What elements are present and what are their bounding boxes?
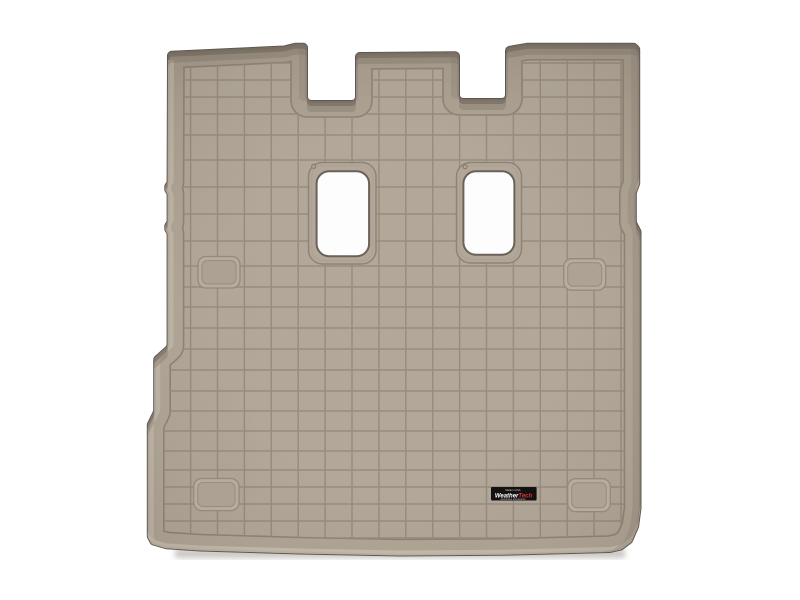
svg-text:automotive accessories: automotive accessories: [501, 498, 527, 501]
svg-text:Made in USA: Made in USA: [505, 488, 521, 492]
